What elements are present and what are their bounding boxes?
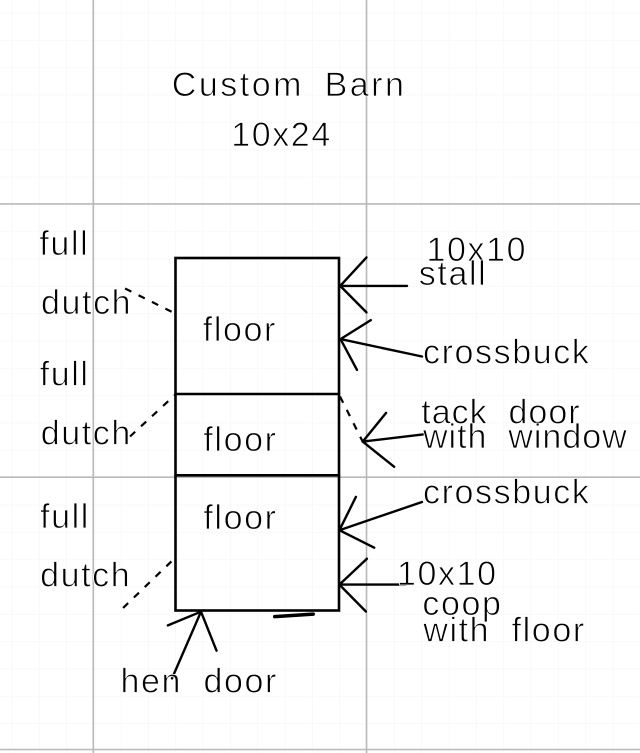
svg-text:dutch: dutch bbox=[41, 415, 132, 453]
svg-text:dutch: dutch bbox=[40, 557, 131, 595]
svg-text:dutch: dutch bbox=[41, 284, 132, 322]
svg-text:floor: floor bbox=[203, 311, 277, 349]
svg-text:stall: stall bbox=[419, 255, 487, 293]
svg-text:crossbuck: crossbuck bbox=[423, 474, 590, 512]
svg-text:full: full bbox=[39, 225, 89, 263]
svg-text:crossbuck: crossbuck bbox=[423, 334, 590, 372]
svg-text:10x24: 10x24 bbox=[231, 116, 332, 154]
svg-text:full: full bbox=[40, 498, 90, 536]
svg-text:with window: with window bbox=[422, 418, 628, 456]
svg-text:floor: floor bbox=[203, 421, 277, 459]
svg-text:floor: floor bbox=[203, 499, 277, 537]
svg-text:hen door: hen door bbox=[121, 663, 278, 701]
svg-text:with floor: with floor bbox=[422, 612, 585, 650]
svg-text:full: full bbox=[40, 356, 90, 394]
svg-text:Custom Barn: Custom Barn bbox=[172, 66, 407, 104]
